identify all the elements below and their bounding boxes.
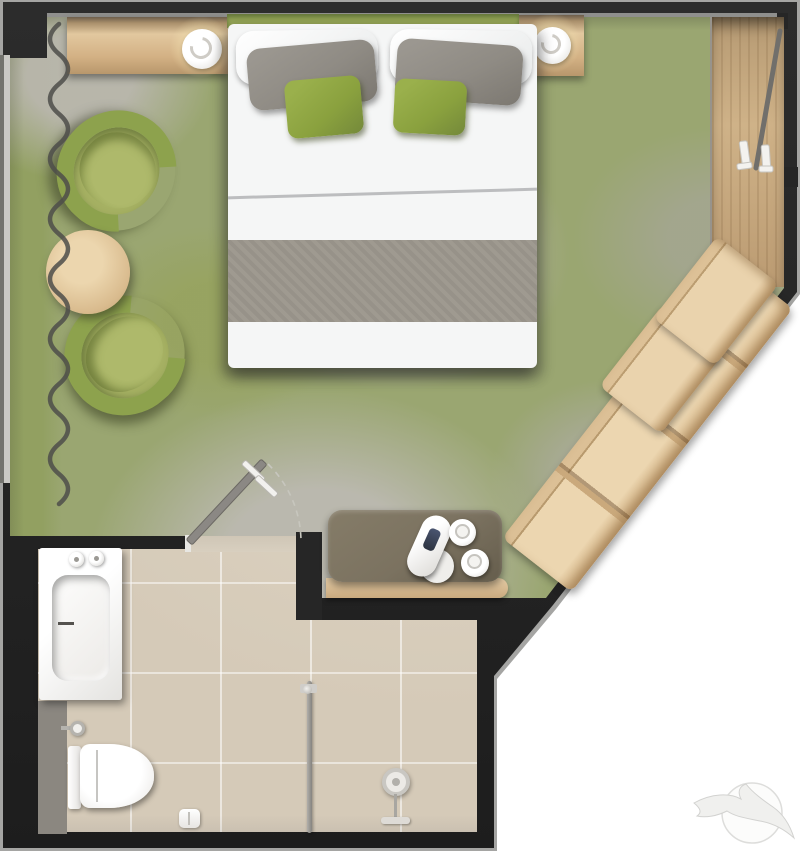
cup — [455, 524, 470, 539]
armchair-cushion — [65, 117, 171, 223]
lamp-shade-ring — [537, 30, 565, 58]
partition-wall-stub — [296, 532, 322, 620]
armchair-cushion — [71, 302, 177, 407]
coffee-table — [46, 230, 130, 314]
shower-head-center — [392, 778, 400, 786]
tap-knob — [89, 551, 104, 566]
toilet-paper-roll — [179, 809, 200, 828]
window-wall — [0, 55, 10, 483]
cup — [467, 554, 482, 569]
bed-runner — [228, 240, 537, 322]
floor-plan — [0, 0, 800, 851]
cushion-green-left — [284, 75, 365, 139]
table-lamp — [182, 29, 222, 69]
bed-skirt-ruffle — [226, 354, 539, 372]
shower-rail-knob — [303, 685, 312, 694]
seagull-sun-logo — [694, 783, 794, 843]
kettle-handle — [422, 527, 442, 552]
bathtub-basin — [52, 575, 110, 681]
water-valve — [70, 721, 85, 736]
duvet-fold-line — [228, 188, 537, 200]
double-bed — [228, 24, 537, 368]
lamp-shade-ring — [186, 33, 217, 64]
shower-head — [382, 768, 410, 796]
cup-and-saucer — [461, 549, 489, 577]
shower-stem — [394, 794, 397, 819]
cushion-green-right — [393, 78, 468, 136]
tap-knob-dot — [74, 557, 79, 562]
plumbing-half-wall — [38, 701, 67, 834]
toilet-seat-seam — [96, 750, 98, 802]
drain-lever — [58, 622, 74, 625]
door-jamb-left — [185, 535, 191, 552]
cup-and-saucer — [449, 519, 476, 546]
shower-rail — [307, 681, 312, 833]
tap-knob-dot — [94, 556, 99, 561]
table-lamp — [534, 27, 571, 64]
shower-base-bar — [381, 817, 410, 824]
bathtub — [39, 548, 122, 700]
tap-knob — [69, 552, 84, 567]
toilet-paper-slot — [188, 812, 190, 825]
doorway-threshold — [190, 536, 296, 552]
